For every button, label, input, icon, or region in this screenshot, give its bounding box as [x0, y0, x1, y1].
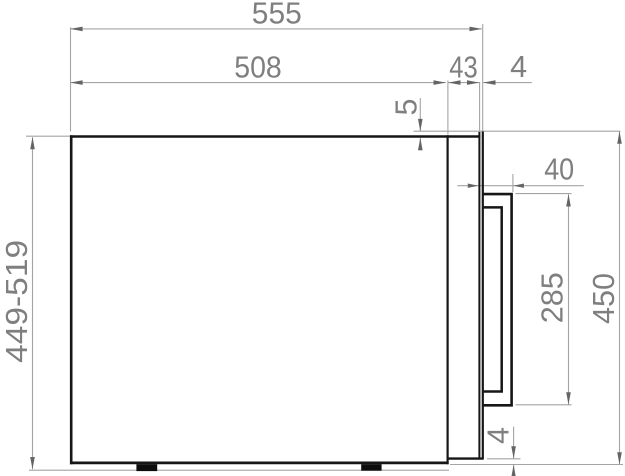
svg-text:40: 40 [544, 153, 574, 187]
svg-text:4: 4 [482, 427, 516, 444]
svg-text:555: 555 [252, 0, 302, 31]
svg-text:4: 4 [510, 50, 527, 84]
svg-text:5: 5 [390, 99, 424, 116]
svg-text:43: 43 [449, 51, 478, 85]
svg-text:449-519: 449-519 [0, 240, 34, 363]
svg-text:285: 285 [536, 272, 570, 323]
svg-text:508: 508 [234, 51, 282, 85]
svg-text:450: 450 [587, 273, 621, 324]
